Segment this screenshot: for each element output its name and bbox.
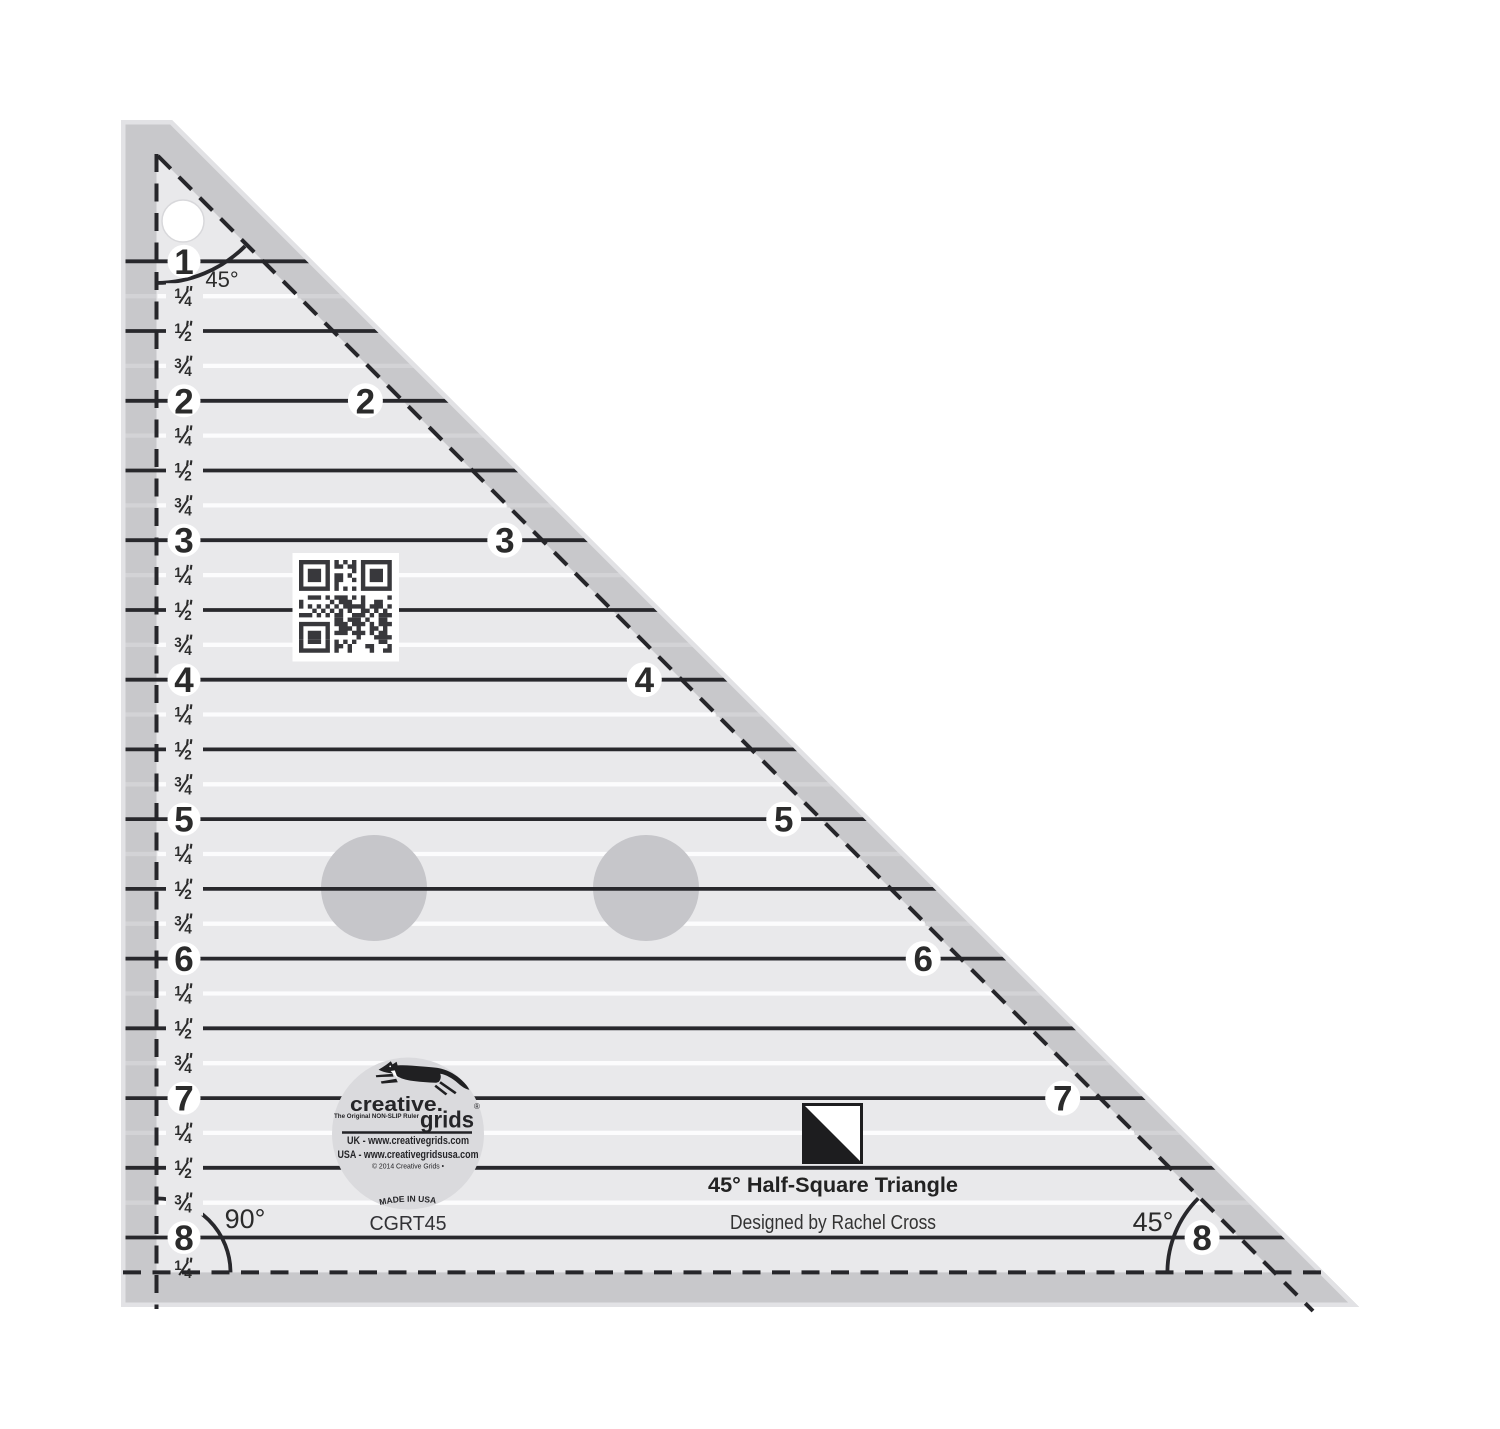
svg-text:The Original NON-SLIP Ruler: The Original NON-SLIP Ruler — [334, 1113, 419, 1120]
svg-text:4: 4 — [184, 1201, 192, 1216]
svg-text:90°: 90° — [225, 1204, 266, 1234]
svg-text:5: 5 — [174, 801, 193, 840]
svg-text:2: 2 — [184, 608, 192, 623]
svg-text:8: 8 — [1192, 1219, 1211, 1258]
svg-text:© 2014 Creative Grids •: © 2014 Creative Grids • — [372, 1162, 444, 1171]
svg-text:4: 4 — [184, 573, 192, 588]
svg-text:5: 5 — [774, 801, 793, 840]
svg-text:UK - www.creativegrids.com: UK - www.creativegrids.com — [347, 1135, 469, 1147]
svg-text:45°: 45° — [205, 267, 238, 292]
svg-text:2: 2 — [356, 382, 375, 421]
svg-text:4: 4 — [184, 1061, 192, 1076]
svg-text:6: 6 — [174, 940, 193, 979]
svg-text:45°: 45° — [1133, 1207, 1174, 1237]
svg-text:8: 8 — [174, 1219, 193, 1258]
svg-text:USA - www.creativegridsusa.com: USA - www.creativegridsusa.com — [338, 1149, 479, 1161]
svg-text:4: 4 — [184, 1266, 192, 1281]
svg-text:4: 4 — [184, 922, 192, 937]
svg-text:4: 4 — [184, 503, 192, 518]
svg-text:CGRT45: CGRT45 — [370, 1212, 447, 1235]
svg-text:2: 2 — [184, 1026, 192, 1041]
svg-text:2: 2 — [184, 747, 192, 762]
svg-text:4: 4 — [184, 1131, 192, 1146]
svg-text:2: 2 — [184, 1166, 192, 1181]
svg-text:grids: grids — [420, 1107, 474, 1133]
svg-text:4: 4 — [635, 661, 655, 700]
svg-text:7: 7 — [1053, 1080, 1072, 1119]
svg-text:4: 4 — [184, 434, 192, 449]
svg-text:4: 4 — [184, 643, 192, 658]
svg-text:4: 4 — [184, 992, 192, 1007]
svg-text:®: ® — [474, 1102, 480, 1111]
svg-text:7: 7 — [174, 1080, 193, 1119]
svg-text:6: 6 — [913, 940, 932, 979]
svg-text:4: 4 — [184, 713, 192, 728]
svg-text:2: 2 — [174, 382, 193, 421]
svg-text:45° Half-Square Triangle: 45° Half-Square Triangle — [708, 1174, 958, 1197]
svg-text:4: 4 — [184, 852, 192, 867]
svg-text:3: 3 — [174, 522, 193, 561]
svg-text:4: 4 — [184, 364, 192, 379]
svg-text:4: 4 — [174, 661, 194, 700]
svg-text:2: 2 — [184, 469, 192, 484]
svg-text:3: 3 — [495, 522, 514, 561]
svg-text:2: 2 — [184, 329, 192, 344]
svg-text:Designed by Rachel Cross: Designed by Rachel Cross — [730, 1212, 936, 1234]
svg-text:1: 1 — [174, 243, 193, 282]
svg-text:4: 4 — [184, 294, 192, 309]
svg-text:4: 4 — [184, 782, 192, 797]
svg-text:2: 2 — [184, 887, 192, 902]
